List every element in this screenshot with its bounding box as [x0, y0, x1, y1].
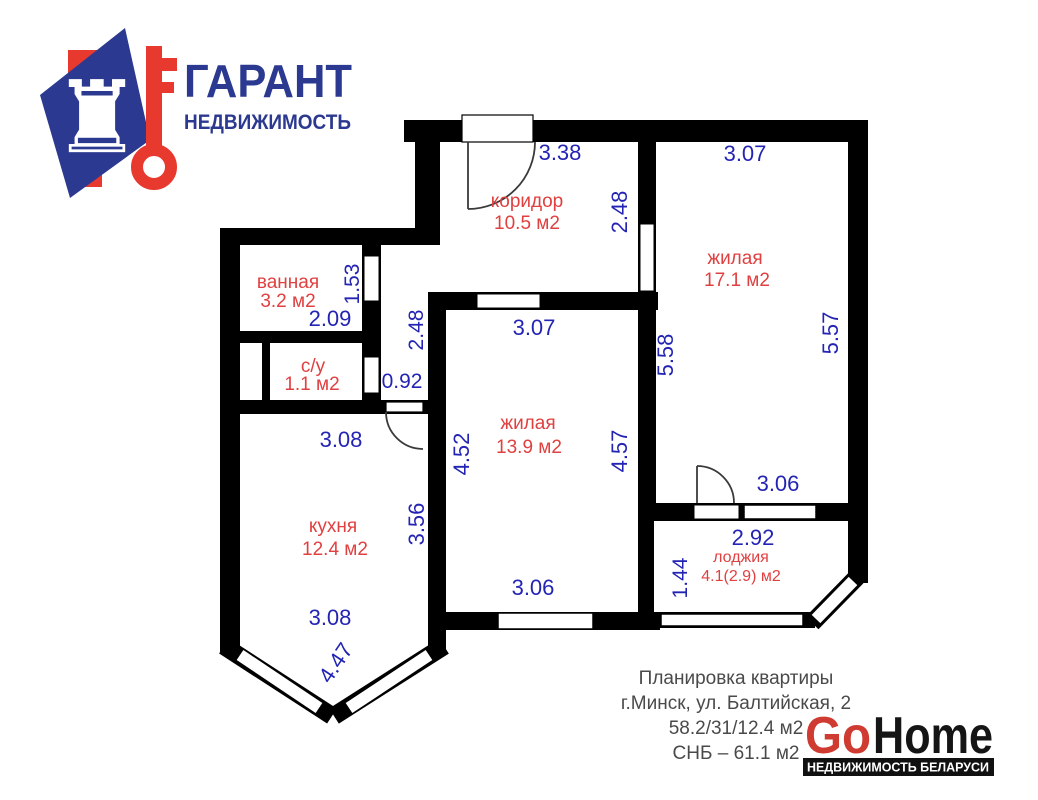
dim-kitchen-right: 3.56: [404, 503, 429, 546]
room-su-area: 1.1 м2: [284, 374, 339, 395]
dim-koridor-right: 2.48: [607, 191, 632, 234]
wall-shaft: [262, 343, 270, 403]
garant-logo: ♜ ГАРАНТ НЕДВИЖИМОСТЬ: [40, 28, 352, 198]
garant-logo-subtitle: НЕДВИЖИМОСТЬ: [184, 111, 351, 134]
wall-left: [220, 228, 240, 652]
dim-loggia-height: 1.44: [669, 557, 692, 598]
wall-kitchen-right: [428, 292, 446, 650]
kitchen-door-leaf: [386, 402, 423, 412]
room-kuhnya-area: 12.4 м2: [302, 539, 368, 560]
footer: Планировка квартиры г.Минск, ул. Балтийс…: [621, 668, 994, 776]
wc-door-opening: [364, 357, 379, 393]
gohome-tagline: НЕДВИЖИМОСТЬ БЕЛАРУСИ: [807, 760, 989, 775]
entrance-door-opening: [462, 115, 533, 142]
garant-logo-title: ГАРАНТ: [184, 55, 352, 107]
room-lodzhiya-area: 4.1(2.9) м2: [701, 568, 781, 585]
room-zhilaya13-area: 13.9 м2: [496, 437, 562, 458]
room13-window: [498, 613, 593, 629]
dim-room17-right: 5.57: [818, 312, 843, 355]
dim-hall-width: 0.92: [382, 370, 423, 393]
room-koridor-name: коридор: [491, 191, 564, 212]
room-kuhnya-name: кухня: [309, 516, 357, 537]
floorplan-image: ♜ ГАРАНТ НЕДВИЖИМОСТЬ: [0, 0, 1038, 800]
corridor-room13-opening: [477, 294, 540, 308]
dim-room13-top: 3.07: [513, 315, 556, 340]
room17-balcony-window: [744, 505, 816, 519]
loggia-window: [661, 614, 803, 626]
kitchen-door-arc: [386, 412, 423, 449]
balcony-door-arc: [697, 466, 734, 503]
dim-koridor-top: 3.38: [539, 140, 582, 165]
dim-room13-left: 4.52: [449, 433, 474, 476]
corridor-room17-opening: [640, 224, 654, 291]
room-zhilaya17-name: жилая: [707, 248, 762, 269]
room-lodzhiya-name: лоджия: [713, 549, 769, 566]
room-vannaya-name: ванная: [257, 272, 319, 293]
gohome-logo-home: Home: [873, 707, 993, 765]
dim-kitchen-bay: 4.47: [313, 638, 358, 687]
room-vannaya-area: 3.2 м2: [260, 291, 315, 312]
dim-hall-height: 2.48: [405, 310, 428, 351]
dim-room17-left: 5.58: [653, 334, 678, 377]
wall-loggia-left: [638, 503, 654, 628]
wall-bath-bottom: [220, 331, 381, 343]
dim-kitchen-bottom: 3.08: [309, 605, 352, 630]
bay-window-right: [349, 655, 429, 708]
gohome-logo: Go Home НЕДВИЖИМОСТЬ БЕЛАРУСИ: [803, 707, 994, 776]
dim-loggia-width: 2.92: [732, 525, 775, 550]
dim-room13-right: 4.57: [607, 430, 632, 473]
dim-kitchen-top: 3.08: [320, 427, 363, 452]
wall-room17-left: [638, 142, 656, 512]
wall-corridor-left: [415, 120, 440, 245]
dim-room17-balcony: 3.06: [757, 471, 800, 496]
chess-rook-icon: ♜: [52, 62, 142, 174]
wall-room13-top: [428, 292, 658, 310]
caption-line-3: 58.2/31/12.4 м2: [669, 718, 804, 739]
floorplan-page: ♜ ГАРАНТ НЕДВИЖИМОСТЬ: [0, 0, 1038, 800]
balcony-door-opening: [694, 505, 739, 519]
dim-bath-door: 1.53: [341, 264, 364, 305]
room-zhilaya13-name: жилая: [500, 413, 555, 434]
dim-room13-bottom: 3.06: [512, 575, 555, 600]
caption-line-1: Планировка квартиры: [639, 668, 834, 689]
wall-bath-top: [220, 228, 440, 245]
bath-door-opening: [364, 256, 379, 301]
gohome-logo-go: Go: [805, 707, 871, 765]
room-labels: коридор 10.5 м2 жилая 17.1 м2 ванная 3.2…: [257, 191, 781, 585]
room-koridor-area: 10.5 м2: [494, 213, 560, 234]
loggia-corner-window: [816, 581, 853, 619]
dim-room17-top: 3.07: [724, 141, 767, 166]
room-zhilaya17-area: 17.1 м2: [704, 270, 770, 291]
bay-window-left: [240, 655, 319, 708]
caption-line-4: СНБ – 61.1 м2: [673, 743, 800, 764]
